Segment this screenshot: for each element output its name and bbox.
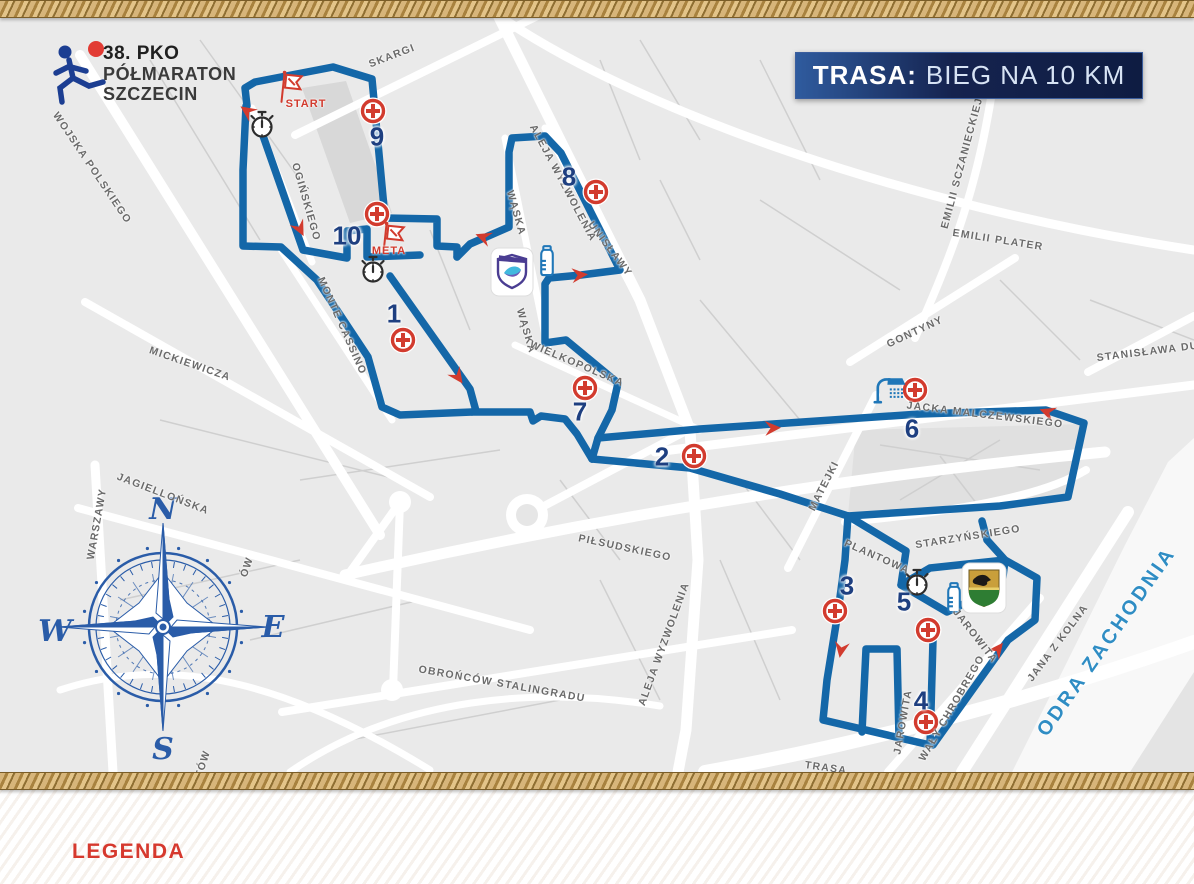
route-layer [0,16,1194,772]
medical-point-icon [572,375,599,402]
medical-point-icon [681,443,708,470]
water-point-icon [541,246,553,275]
water-point-icon [948,583,960,612]
medical-point-icon [390,327,417,354]
medical-point-icon [822,598,849,625]
water-curtain-icon [875,378,906,402]
rope-border-top [0,0,1194,18]
rope-border-bottom [0,772,1194,790]
start-meta-flag-icon [382,222,404,255]
poster: N E S W [0,0,1194,884]
club-logo [491,248,533,296]
medical-point-icon [902,377,929,404]
event-city: SZCZECIN [103,84,236,104]
route-segment [592,459,848,516]
legend-title: LEGENDA [72,840,185,864]
event-logo-text: 38. PKO PÓŁMARATON SZCZECIN [103,44,236,104]
legend-strip: START/META1KM BIEGUKIERUNEKBIEGU KURTYNY… [0,789,1194,884]
timing-mat-icon [252,112,273,137]
timing-mat-icon [363,257,384,282]
banner-prefix: TRASA: [813,60,917,91]
route-segment [472,412,592,459]
route-segment [933,521,1037,745]
route-segment [243,106,472,415]
medical-point-icon [913,709,940,736]
medical-point-icon [915,617,942,644]
route-title-banner: TRASA: BIEG NA 10 KM [795,52,1143,99]
route-segment [848,516,906,585]
event-name: PÓŁMARATON [103,64,236,84]
district-crest [962,563,1006,613]
banner-title: BIEG NA 10 KM [926,60,1125,91]
route-map: N E S W [0,16,1194,772]
medical-point-icon [583,179,610,206]
medical-point-icon [360,98,387,125]
route-segment [862,649,899,738]
event-edition: 38. PKO [103,44,236,64]
